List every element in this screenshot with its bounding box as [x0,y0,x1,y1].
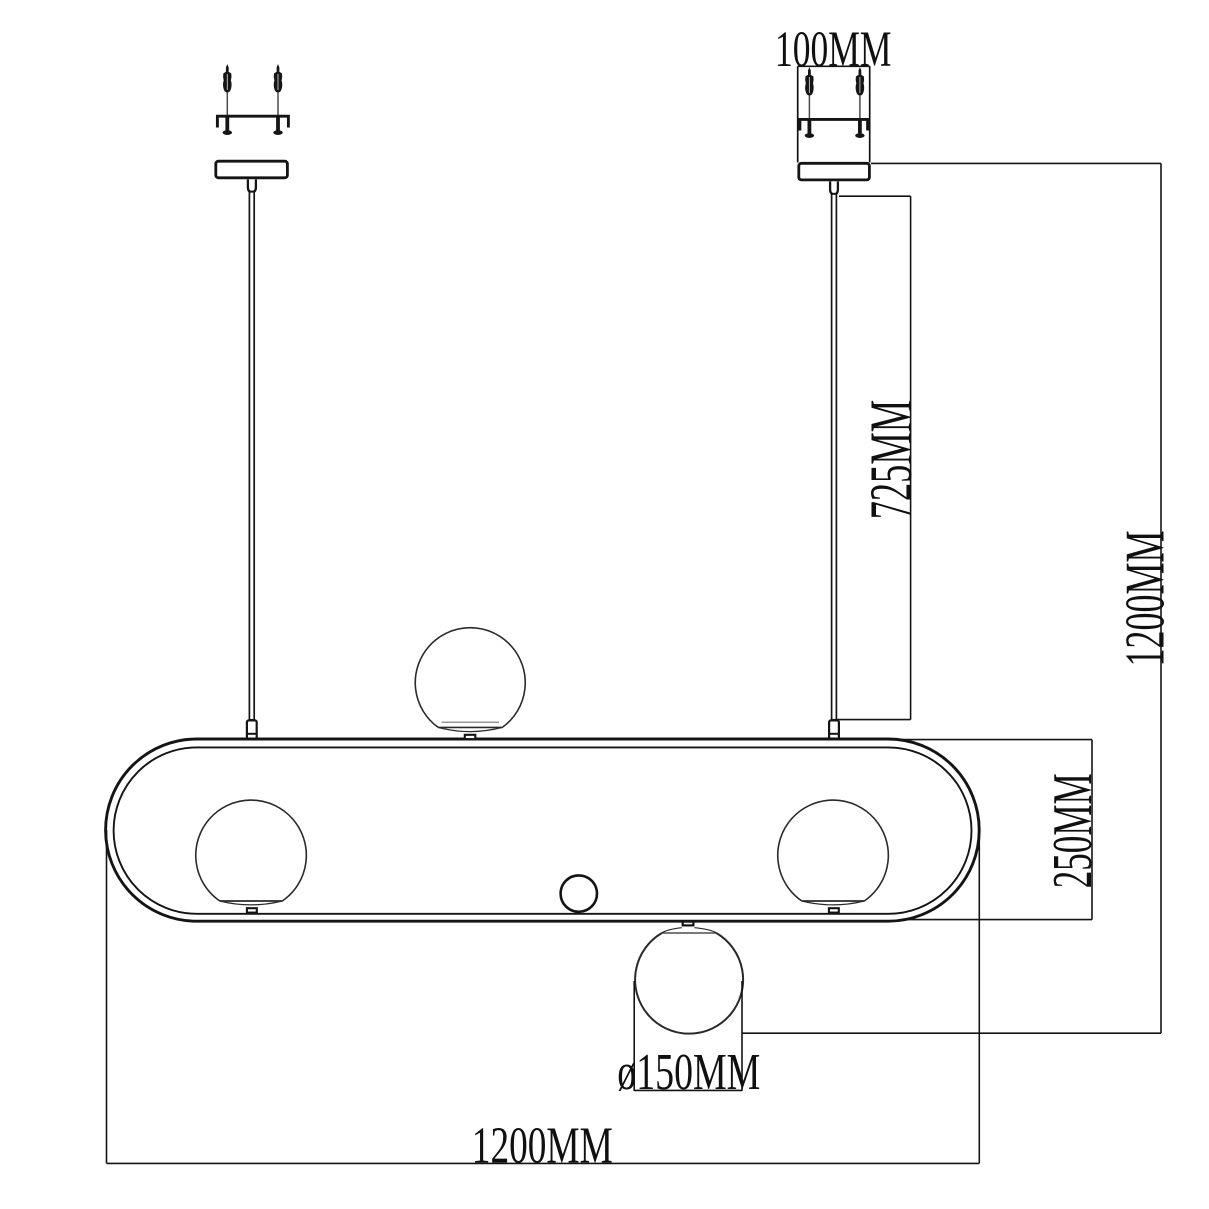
svg-text:250MM: 250MM [1042,773,1104,888]
svg-text:100MM: 100MM [775,22,892,78]
svg-text:1200MM: 1200MM [1114,531,1176,667]
svg-text:1200MM: 1200MM [472,1118,613,1175]
svg-text:725MM: 725MM [858,400,924,520]
svg-text:ø150MM: ø150MM [617,1044,760,1101]
